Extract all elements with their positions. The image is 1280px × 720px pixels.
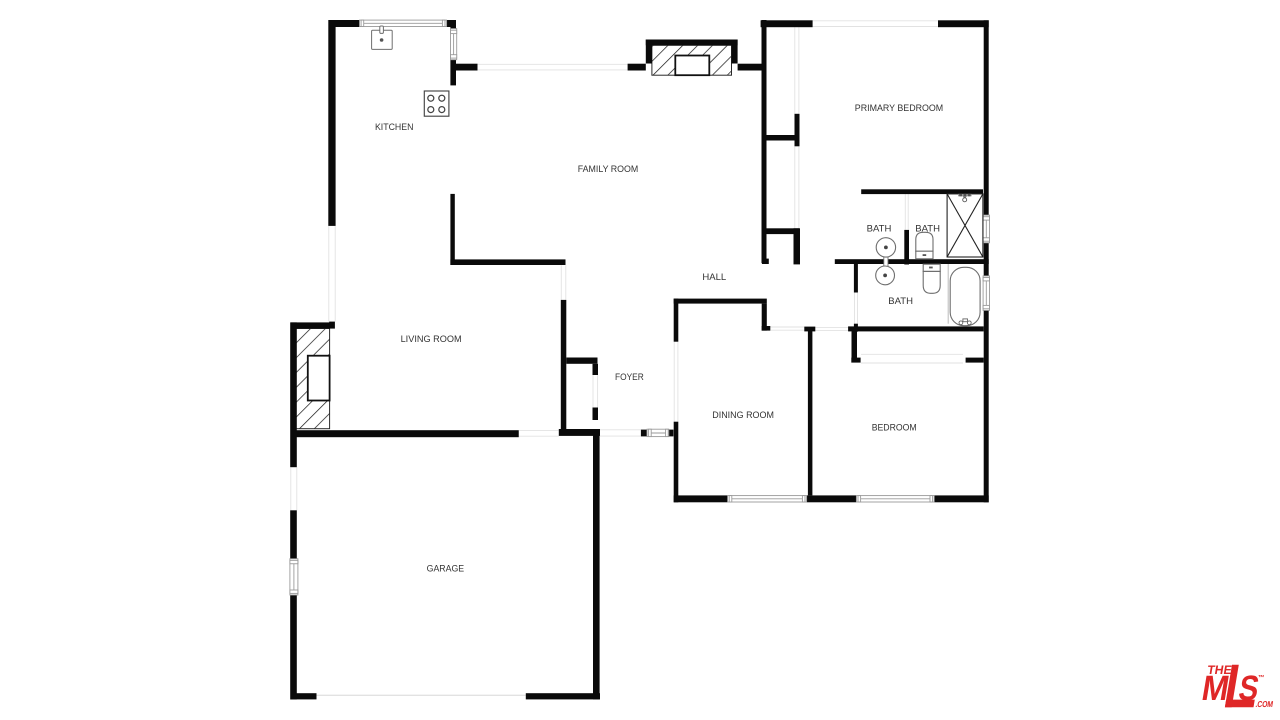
svg-text:KITCHEN: KITCHEN — [375, 121, 414, 132]
svg-text:DINING ROOM: DINING ROOM — [712, 409, 774, 420]
svg-text:BATH: BATH — [888, 295, 913, 306]
svg-text:BATH: BATH — [915, 223, 940, 234]
svg-text:HALL: HALL — [702, 271, 726, 282]
svg-text:GARAGE: GARAGE — [427, 562, 465, 573]
svg-text:LIVING ROOM: LIVING ROOM — [401, 333, 462, 344]
svg-text:BATH: BATH — [867, 223, 892, 234]
svg-text:PRIMARY BEDROOM: PRIMARY BEDROOM — [855, 102, 944, 113]
svg-text:.COM: .COM — [1255, 699, 1274, 709]
svg-text:FAMILY ROOM: FAMILY ROOM — [578, 163, 639, 174]
svg-text:BEDROOM: BEDROOM — [872, 421, 917, 432]
svg-text:™: ™ — [1257, 675, 1265, 682]
svg-text:FOYER: FOYER — [615, 371, 644, 382]
